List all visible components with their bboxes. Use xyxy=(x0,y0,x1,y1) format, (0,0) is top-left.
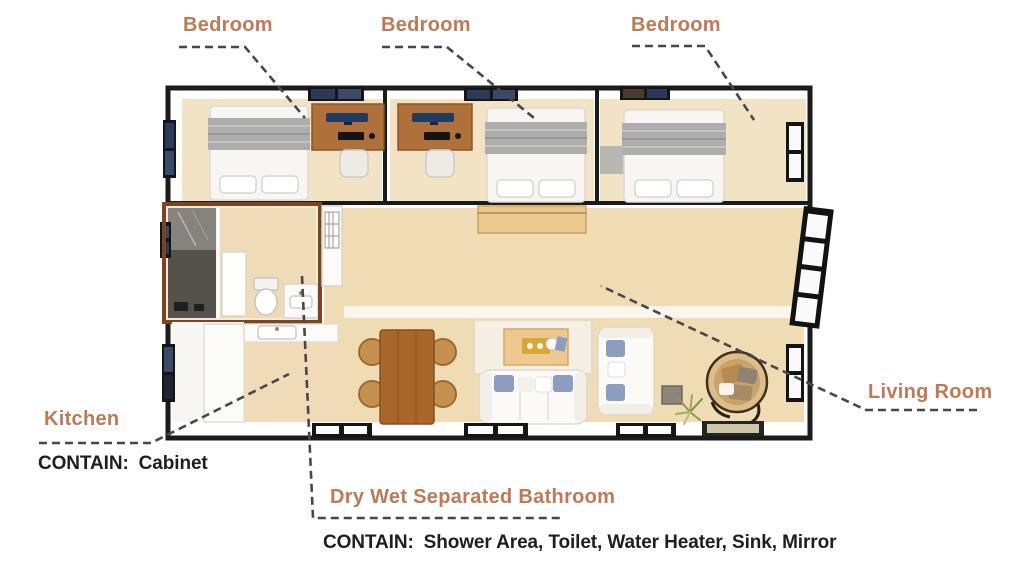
water-heater xyxy=(322,206,342,286)
kitchen-room xyxy=(162,322,338,422)
shower-area xyxy=(168,208,218,318)
label-bedroom-3: Bedroom xyxy=(631,14,721,37)
bed-1 xyxy=(208,106,310,200)
label-living-room: Living Room xyxy=(868,381,992,404)
label-bedroom-1: Bedroom xyxy=(183,14,273,37)
throw-pillow xyxy=(608,362,625,377)
bathroom-contain-prefix: CONTAIN: xyxy=(323,532,414,554)
bathroom-cabinet xyxy=(222,252,246,316)
throw-pillow xyxy=(606,340,625,357)
window-kitchen-left xyxy=(162,344,175,402)
sofa-three-seat xyxy=(480,370,586,424)
coffee-table xyxy=(504,329,568,365)
bed-2 xyxy=(485,108,587,202)
bed-3 xyxy=(622,110,726,202)
throw-pillow xyxy=(553,375,573,392)
corridor-sideboard xyxy=(478,206,586,233)
label-bathroom: Dry Wet Separated Bathroom xyxy=(330,486,615,509)
bathroom-room xyxy=(160,204,342,322)
sofa-loveseat xyxy=(598,328,654,414)
desk-chair-1 xyxy=(340,150,368,177)
desk-chair-2 xyxy=(426,150,454,177)
floor-plan-page: Bedroom Bedroom Bedroom Kitchen CONTAIN:… xyxy=(0,0,1020,576)
side-table xyxy=(662,386,682,404)
kitchen-sink xyxy=(258,326,296,339)
kitchen-floor xyxy=(244,342,338,422)
window-bedroom-1-top xyxy=(308,87,364,101)
window-bedroom-3-right xyxy=(786,122,804,182)
throw-pillow xyxy=(494,375,514,392)
kitchen-contain-text: CONTAIN: Cabinet xyxy=(38,453,208,475)
kitchen-contain-items: Cabinet xyxy=(139,453,208,475)
bathroom-contain-items: Shower Area, Toilet, Water Heater, Sink,… xyxy=(424,532,837,554)
label-kitchen: Kitchen xyxy=(44,408,119,431)
window-bedroom-3-top xyxy=(620,87,670,100)
label-bedroom-2: Bedroom xyxy=(381,14,471,37)
bathroom-sink xyxy=(284,284,318,318)
window-bottom-sofa xyxy=(464,423,528,437)
window-bottom-kitchen xyxy=(312,423,372,437)
window-bottom-living xyxy=(616,423,676,437)
dining-table xyxy=(380,330,434,424)
window-bedroom-1-left xyxy=(163,120,176,178)
throw-pillow xyxy=(606,384,625,401)
throw-pillow xyxy=(517,377,534,392)
kitchen-contain-prefix: CONTAIN: xyxy=(38,453,129,475)
toilet xyxy=(254,278,278,315)
closet xyxy=(600,146,624,174)
bathroom-contain-text: CONTAIN: Shower Area, Toilet, Water Heat… xyxy=(323,532,836,554)
throw-pillow xyxy=(535,377,552,392)
doormat xyxy=(702,421,764,436)
